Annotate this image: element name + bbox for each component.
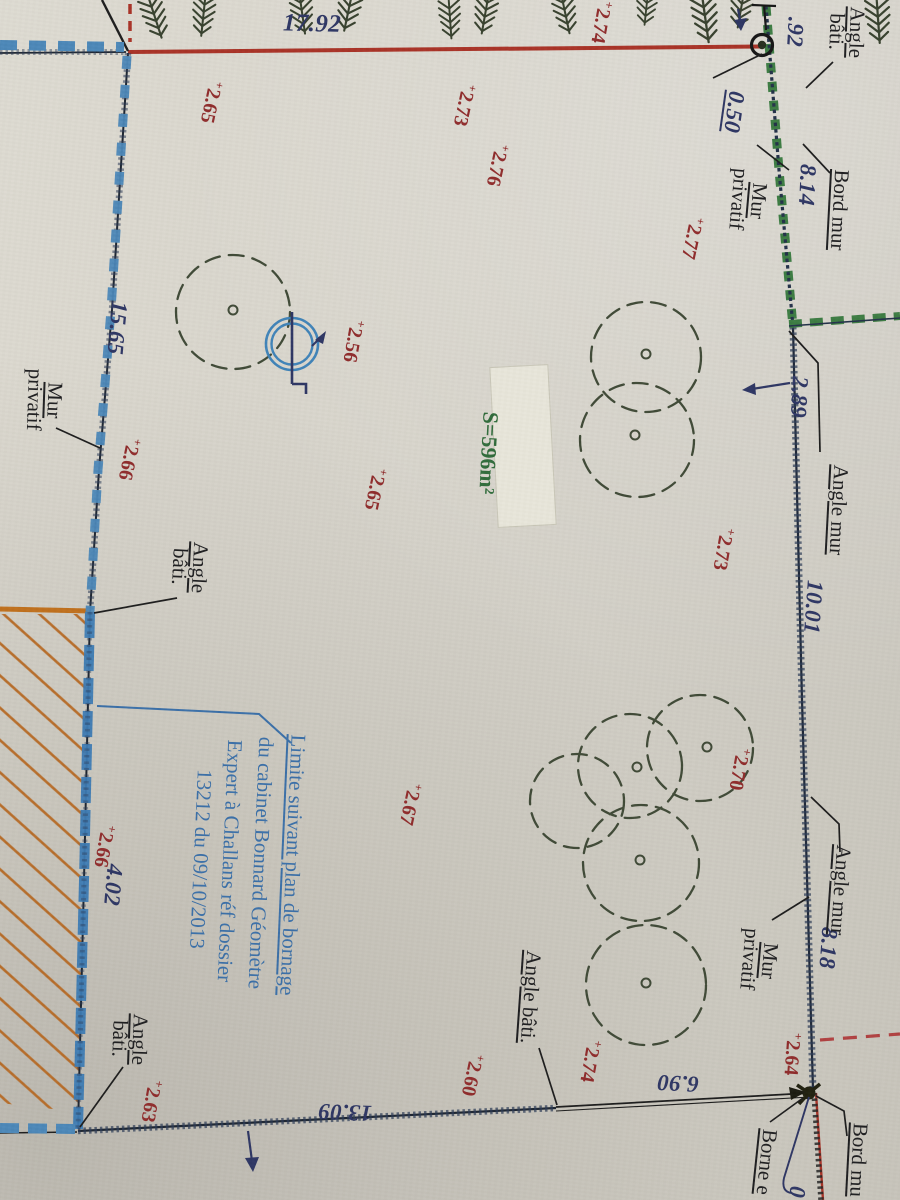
black-diagonal-line-top-left <box>102 0 128 51</box>
dimension-2-89: 2.89 <box>787 376 811 419</box>
label-angle-bati-top-right: Anglebâti. <box>825 6 867 59</box>
leader-borne-navy <box>783 1097 809 1193</box>
label-bord-mur-top: Bord mur <box>827 169 851 251</box>
wall-bottom-left-stub <box>0 1128 77 1133</box>
dimension-92: .92 <box>783 16 806 47</box>
wall-top-left <box>0 45 126 53</box>
well-symbol <box>266 312 326 394</box>
dimension-0-50: 0.50 <box>720 90 747 134</box>
dimension-17-92: 17.92 <box>283 11 342 36</box>
label-mur-privatif-top: Murprivatif <box>725 167 770 232</box>
label-angle-bati-bottom-left: Anglebâti. <box>108 1013 150 1066</box>
dimension-13-09: 13.09 <box>318 1100 372 1124</box>
surface-area-label: S=596m² <box>475 411 500 495</box>
dimension-6-90: 6.90 <box>657 1071 700 1095</box>
vegetation-fern-icons <box>138 0 891 44</box>
red-boundary-line <box>128 47 760 53</box>
label-angle-mur-right: Angle mur <box>826 464 851 555</box>
wall-red-bottom-right <box>814 1093 823 1200</box>
label-angle-bati-center: Angle bâti. <box>517 950 543 1044</box>
wall-green-angle-mur-bar <box>789 316 900 326</box>
spot-elevation: +2.64 <box>781 1032 804 1076</box>
dimension-4-02: 4.02 <box>100 863 125 907</box>
red-dashed-line-right <box>820 1034 900 1040</box>
dimension-0-cut: 0 <box>786 1185 809 1199</box>
wall-right <box>793 327 813 1090</box>
tick-arrows <box>245 9 790 1172</box>
label-angle-bati-left: Anglebâti. <box>168 540 211 593</box>
dimension-8-14: 8.14 <box>795 164 819 207</box>
label-mur-privatif-left: Murprivatif <box>23 368 65 431</box>
dimension-10-01: 10.01 <box>800 579 826 634</box>
building-edge-line <box>0 609 91 611</box>
dimension-15-65: 15.65 <box>104 300 130 355</box>
label-borne-bottom-right: Borne e <box>753 1128 780 1196</box>
building-hatch-area <box>0 614 90 1112</box>
label-mur-privatif-right: Murprivatif <box>736 927 781 992</box>
spot-cross-icon: + <box>791 1032 805 1040</box>
survey-plan-photo: 17.92 .92 0.50 8.14 2.89 10.01 8.18 6.90… <box>0 0 900 1200</box>
wall-green-top-right <box>766 6 793 327</box>
label-bord-mur-bottom-right: Bord mu <box>846 1122 870 1197</box>
label-angle-mur-right-2: Angle mur <box>827 844 853 936</box>
